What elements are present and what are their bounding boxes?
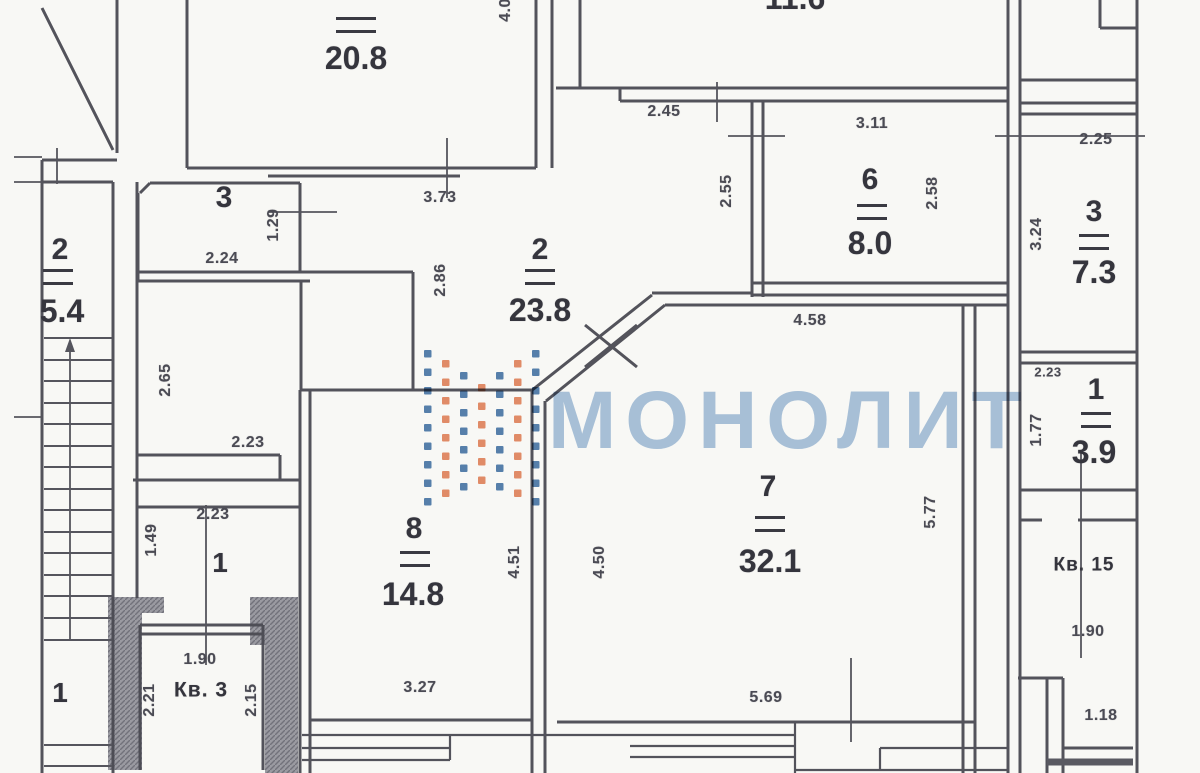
logo-dot: [532, 350, 540, 358]
room2-hall-area-separator: [525, 269, 555, 285]
logo-dot: [424, 443, 432, 451]
dim-2-86: 2.86: [433, 263, 449, 296]
room3-right-area: 7.3: [1072, 256, 1116, 288]
logo-dot: [532, 480, 540, 488]
logo-dot: [460, 391, 468, 399]
logo-dot: [460, 446, 468, 454]
dim-2-24: 2.24: [205, 251, 238, 267]
room7-area: 32.1: [739, 545, 801, 577]
logo-dot: [424, 480, 432, 488]
room6-area-separator: [857, 204, 887, 220]
dim-5-77: 5.77: [923, 495, 939, 528]
logo-dot: [460, 372, 468, 380]
room4-area-separator: [336, 17, 376, 33]
apartment-15-label: Кв. 15: [1054, 556, 1115, 575]
logo-dot: [424, 406, 432, 414]
dim-3-24: 3.24: [1029, 217, 1045, 250]
room7-area-separator: [755, 516, 785, 532]
dim-2-23-b: 2.23: [196, 507, 229, 523]
logo-dot: [532, 387, 540, 395]
room4-area: 20.8: [325, 42, 387, 74]
room6-number: 6: [862, 165, 879, 195]
logo-dot: [496, 428, 504, 436]
room1-right-area-separator: [1081, 412, 1111, 428]
dim-1-77: 1.77: [1029, 413, 1045, 446]
logo-dot: [532, 498, 540, 506]
watermark-text: МОНОЛИТ: [548, 380, 1031, 462]
logo-dot: [514, 360, 522, 368]
logo-dot: [478, 440, 486, 448]
logo-dot: [478, 403, 486, 411]
room3-right-area-separator: [1079, 234, 1109, 250]
dim-3-73: 3.73: [423, 190, 456, 206]
dim-2-45: 2.45: [647, 104, 680, 120]
logo-dot: [424, 498, 432, 506]
room8-number: 8: [406, 514, 423, 544]
logo-dot: [478, 477, 486, 485]
logo-dot: [532, 461, 540, 469]
logo-dot: [424, 369, 432, 377]
room3-right-number: 3: [1086, 197, 1103, 227]
watermark: МОНОЛИТ: [0, 0, 1200, 773]
dim-1-29: 1.29: [266, 208, 282, 241]
logo-dot: [532, 369, 540, 377]
dim-1-90-a: 1.90: [183, 652, 216, 668]
logo-dot: [424, 387, 432, 395]
top-partial-area: 11.6: [765, 0, 826, 14]
logo-dot: [424, 424, 432, 432]
logo-dot: [460, 428, 468, 436]
dim-4-58: 4.58: [793, 313, 826, 329]
dim-1-18: 1.18: [1084, 708, 1117, 724]
apartment-3-label: Кв. 3: [174, 680, 228, 701]
dim-2-23-c: 2.23: [1034, 366, 1061, 379]
dim-2-25: 2.25: [1079, 132, 1112, 148]
top-partial-dim: 4.0: [498, 0, 514, 22]
logo-dot: [478, 458, 486, 466]
dim-1-90-b: 1.90: [1071, 624, 1104, 640]
logo-dot: [442, 360, 450, 368]
logo-dot: [514, 434, 522, 442]
stairwell-area-separator: [43, 269, 73, 285]
logo-dot: [478, 421, 486, 429]
logo-dot: [514, 379, 522, 387]
room3-small-number: 3: [216, 183, 233, 213]
logo-dot: [442, 434, 450, 442]
logo-dot: [442, 490, 450, 498]
dim-2-23-a: 2.23: [231, 435, 264, 451]
logo-dot: [514, 453, 522, 461]
logo-dot: [514, 471, 522, 479]
logo-dot: [496, 465, 504, 473]
dim-4-51: 4.51: [507, 545, 523, 578]
room2-hall-area: 23.8: [509, 294, 571, 326]
dim-5-69: 5.69: [749, 690, 782, 706]
logo-dot: [514, 397, 522, 405]
logo-dot: [460, 465, 468, 473]
logo-dot: [532, 443, 540, 451]
logo-dot: [496, 446, 504, 454]
logo-dot: [496, 409, 504, 417]
room2-hall-number: 2: [532, 235, 549, 265]
room8-area-separator: [400, 551, 430, 567]
stairwell-number: 2: [52, 235, 69, 265]
logo-dot: [514, 490, 522, 498]
logo-dot: [442, 416, 450, 424]
room7-number: 7: [760, 472, 777, 502]
room1-right-number: 1: [1088, 375, 1105, 405]
room8-area: 14.8: [382, 578, 444, 610]
corridor-label-2: 1: [52, 679, 68, 707]
logo-dot: [442, 453, 450, 461]
logo-dot: [478, 384, 486, 392]
dim-3-27: 3.27: [403, 680, 436, 696]
logo-dot: [496, 391, 504, 399]
floor-plan: МОНОЛИТ 4 20.8 2 23.8 3 2 5.4 6 8.0 3 7.…: [0, 0, 1200, 773]
logo-dot: [424, 461, 432, 469]
logo-dot: [442, 471, 450, 479]
logo-dot: [460, 409, 468, 417]
dim-4-50: 4.50: [592, 545, 608, 578]
logo-dot: [532, 424, 540, 432]
logo-dot: [442, 397, 450, 405]
logo-dot: [460, 483, 468, 491]
logo-dot: [424, 350, 432, 358]
dim-2-65: 2.65: [158, 363, 174, 396]
logo-dot: [514, 416, 522, 424]
dim-2-55: 2.55: [719, 174, 735, 207]
room6-area: 8.0: [848, 227, 892, 259]
logo-dot: [532, 406, 540, 414]
corridor-label-1: 1: [212, 549, 228, 577]
room4-number: 4: [348, 0, 365, 3]
stairwell-area: 5.4: [40, 295, 84, 327]
room1-right-area: 3.9: [1072, 436, 1116, 468]
dim-2-58: 2.58: [925, 176, 941, 209]
dim-3-11: 3.11: [856, 116, 888, 132]
dim-2-21: 2.21: [142, 683, 158, 716]
logo-dot: [496, 372, 504, 380]
dim-2-15: 2.15: [244, 683, 260, 716]
dim-1-49: 1.49: [144, 523, 160, 556]
logo-dot: [442, 379, 450, 387]
logo-dot: [496, 483, 504, 491]
